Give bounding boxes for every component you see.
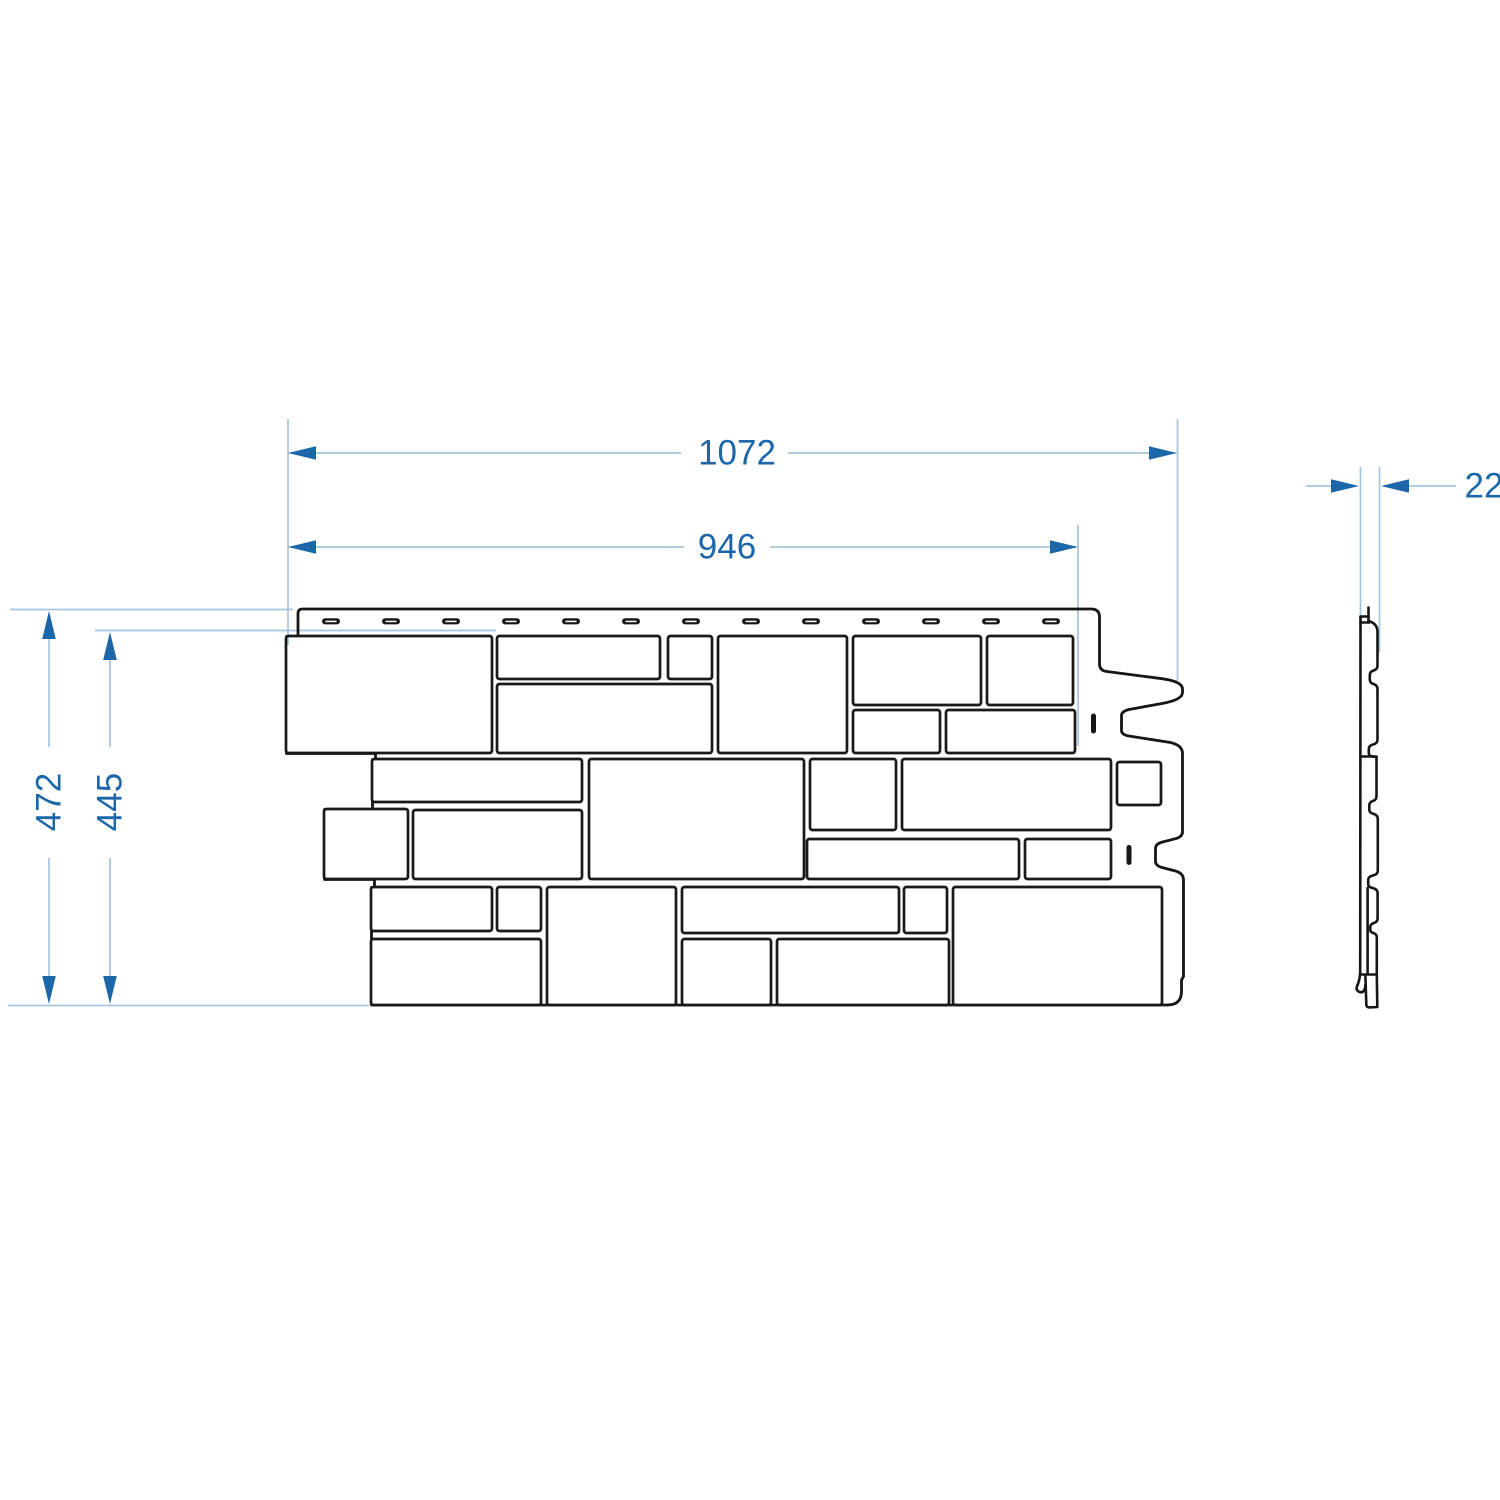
svg-text:445: 445 [91,773,130,831]
svg-text:472: 472 [30,773,69,831]
svg-text:946: 946 [698,528,756,567]
svg-text:22: 22 [1465,467,1500,506]
svg-text:1072: 1072 [698,434,776,473]
